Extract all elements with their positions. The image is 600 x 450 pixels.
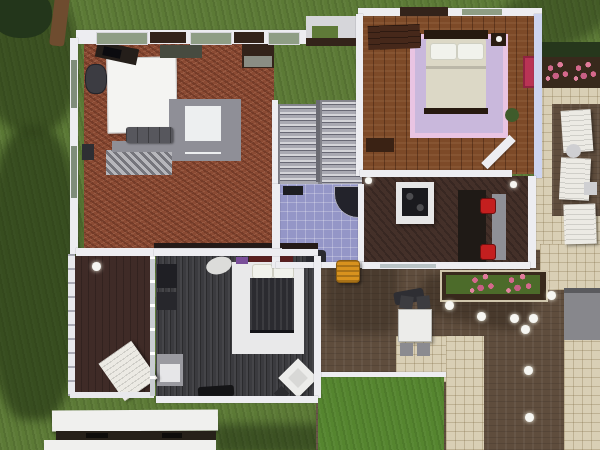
wall-stairs-left [272,100,278,184]
wall-top-dark-1 [150,32,186,43]
cream-patch-right [540,244,600,290]
console-shelf[interactable] [244,56,272,67]
lounger-side-table-1[interactable] [566,144,581,158]
sectional-sofa[interactable] [126,127,173,143]
lounger-side-table-2[interactable] [584,182,597,195]
bed-headboard [424,30,488,39]
rose-cluster-right-1[interactable] [544,59,570,85]
staircase-divider [316,100,320,182]
bed-fold-line [426,66,486,69]
patio-chair-top-1[interactable] [399,295,414,310]
wall-top-dark-2 [234,32,264,43]
garden-light-5[interactable] [529,314,538,323]
white-plank-awning-lower [44,440,216,450]
garden-light-4[interactable] [510,314,519,323]
plank-gap-strip [56,431,216,440]
window-kitchen-south [380,264,436,268]
wall-bath-right [358,184,364,268]
sun-lounger-3[interactable] [563,203,596,244]
white-plank-awning-upper [52,409,218,431]
bathroom-vanity[interactable] [283,186,303,195]
patio-chair-top-2[interactable] [416,295,430,309]
telescope[interactable] [85,64,107,94]
orange-barrel[interactable] [336,260,360,283]
window-left-1 [71,60,77,108]
potted-plant[interactable] [505,108,519,122]
wall-master-top-dark [400,7,448,16]
patio-chair-bottom-1[interactable] [400,343,413,356]
bar-stool-2[interactable] [480,244,496,260]
wardrobe-1[interactable] [157,264,177,288]
rose-cluster-south-2[interactable] [504,271,534,297]
window-top-2 [190,32,232,45]
gray-cabinet-front [160,364,180,382]
kitchen-wall-light-1[interactable] [365,177,372,184]
wall-master-top [358,8,542,16]
bedroom-bench[interactable] [366,138,394,152]
wall-guest-top [154,249,318,256]
cream-column-right [564,340,600,450]
patio-table[interactable] [398,309,432,342]
console-table[interactable] [160,45,202,58]
wall-master-bottom [360,170,512,177]
bed-footboard [424,108,488,114]
balcony-railing-left [68,254,75,396]
garden-light-9[interactable] [547,291,556,300]
bar-stool-1[interactable] [480,198,496,214]
staircase-left-flight[interactable] [278,104,320,186]
stove[interactable] [402,188,428,216]
wall-master-left [356,14,363,176]
wardrobe-2[interactable] [157,292,177,310]
window-top-1 [96,32,148,45]
roof-section-gray [564,288,600,345]
sunken-pit-edge [106,150,172,175]
gap-clutter-2 [162,433,182,438]
window-left-2 [71,146,77,198]
side-item-dark[interactable] [82,144,94,160]
guest-pillow-1 [252,264,273,279]
guest-bed-blanket[interactable] [250,278,294,333]
garden-light-3[interactable] [477,312,486,321]
garden-light-2[interactable] [445,301,454,310]
lawn-patch [318,376,444,450]
wall-guest-right [314,256,321,398]
rose-cluster-right-2[interactable] [572,59,598,85]
bed-pillow-1 [430,43,457,60]
balcony-light[interactable] [92,262,101,271]
patio-chair-bottom-2[interactable] [417,343,430,356]
window-top-3 [268,32,300,45]
projection-screen[interactable] [106,56,177,133]
master-dresser[interactable] [368,24,421,50]
hedge-right [540,42,600,57]
landing-dark-band [306,38,362,46]
bed-pillow-2 [457,43,484,60]
gap-clutter-1 [86,433,108,438]
purple-decor[interactable] [236,257,248,264]
rose-cluster-south-1[interactable] [468,271,496,297]
balcony-railing-bottom [70,392,154,398]
garden-light-7[interactable] [524,366,533,375]
stone-path-vertical [446,336,484,450]
lawn-fence [318,372,446,377]
garden-light-6[interactable] [521,325,530,334]
kitchen-wall-light-2[interactable] [510,181,517,188]
balcony-glass-wall [150,256,155,396]
wall-guest-bottom [156,396,318,403]
game-viewport [0,0,600,450]
window-master-top [462,9,502,15]
wall-kitchen-right [528,176,536,268]
wall-master-right [534,14,542,178]
table-lamp-right[interactable] [496,36,502,42]
landing-green-panel [312,26,338,38]
garden-light-8[interactable] [525,413,534,422]
